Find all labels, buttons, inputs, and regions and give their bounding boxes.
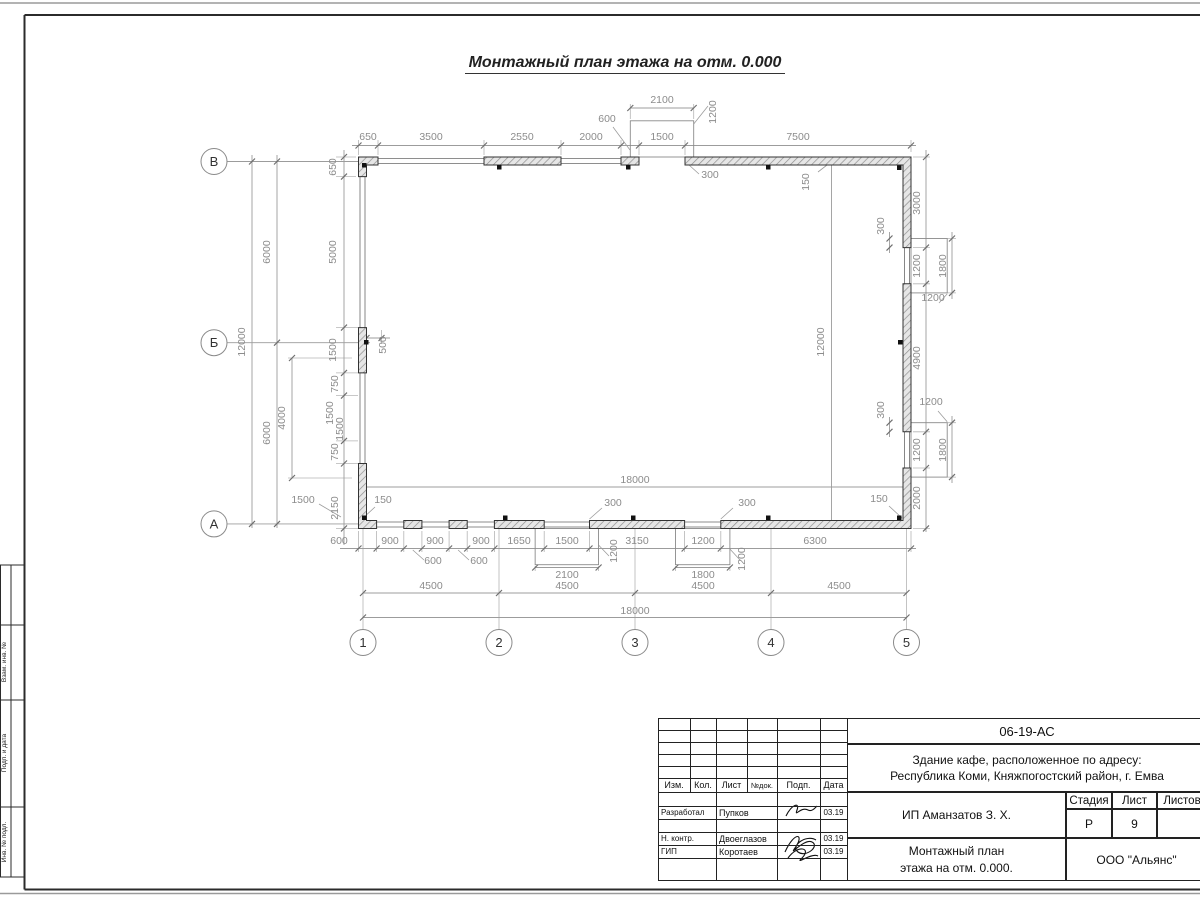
dimension-label: 1200 [919, 396, 943, 408]
stamp-role-3: ГИП [658, 845, 716, 858]
dimension-label: 1500 [291, 494, 315, 506]
stamp-col-izm: Изм. [658, 778, 690, 792]
dimension-label: 6000 [261, 240, 273, 264]
stamp-date-2: 03.19 [820, 832, 847, 845]
dimension-label: 750 [329, 375, 341, 393]
dimension-label: 1500 [327, 338, 339, 362]
side-stamp-label: Подп. и дата [1, 733, 8, 772]
axis-bubble: В [201, 149, 227, 175]
dimension-label: 18000 [620, 474, 649, 486]
dimension-label: 600 [424, 555, 442, 567]
stamp-name-3: Коротаев [716, 845, 777, 858]
dimension-label: 750 [329, 443, 341, 461]
dimension-label: 650 [327, 158, 339, 176]
dimension-label: 3150 [625, 535, 649, 547]
axis-label: 3 [631, 635, 638, 650]
stamp-stage-value: Р [1066, 809, 1112, 838]
dimension-label: 1800 [937, 254, 949, 278]
dimension-label: 2100 [650, 94, 674, 106]
stamp-name-1: Пупков [716, 806, 777, 819]
dimension-label: 500 [377, 336, 389, 354]
dimension-label: 3500 [419, 131, 443, 143]
stamp-col-kol: Кол. [690, 778, 716, 792]
dimension-label: 300 [875, 217, 887, 235]
dimension-label: 300 [738, 497, 756, 509]
stamp-sheets-label: Листов [1157, 792, 1200, 809]
dimension-label: 2000 [911, 486, 923, 510]
dimension-label: 6000 [261, 421, 273, 445]
axis-label: 5 [903, 635, 910, 650]
stamp-client: ИП Аманзатов З. Х. [847, 792, 1066, 838]
stamp-object-name: Здание кафе, расположенное по адресу: Ре… [847, 744, 1200, 792]
dimension-label: 300 [604, 497, 622, 509]
dimension-label: 2150 [329, 496, 341, 520]
dimension-label: 12000 [236, 327, 248, 356]
stamp-object-line1: Здание кафе, расположенное по адресу: [912, 752, 1141, 768]
drawing-caption: Монтажный план этажа на отм. 0.000 [440, 54, 810, 72]
side-stamp-label: Инв. № подл. [1, 822, 8, 863]
stamp-sheet-value: 9 [1112, 809, 1157, 838]
dimension-label: 1650 [507, 535, 531, 547]
axis-bubble: 1 [350, 630, 376, 656]
stamp-role-2: Н. контр. [658, 832, 716, 845]
dimension-label: 4000 [276, 406, 288, 430]
axis-label: Б [210, 335, 219, 350]
dimension-label: 150 [374, 494, 392, 506]
stamp-col-list: Лист [716, 778, 747, 792]
dimension-label: 1200 [736, 547, 748, 571]
dimension-label: 900 [426, 535, 444, 547]
axis-bubble: 5 [894, 630, 920, 656]
dimension-label: 150 [800, 173, 812, 191]
axis-bubble: 4 [758, 630, 784, 656]
dimension-label: 4500 [419, 580, 443, 592]
dimension-label: 900 [472, 535, 490, 547]
axis-bubble: 2 [486, 630, 512, 656]
dimension-label: 1200 [921, 292, 945, 304]
dimension-label: 4500 [691, 580, 715, 592]
stamp-col-podp: Подп. [777, 778, 820, 792]
dimension-label: 1200 [707, 100, 719, 124]
dimension-label: 4900 [911, 346, 923, 370]
stamp-col-ndoc: №док. [747, 778, 777, 792]
dimension-label: 1500 [555, 535, 579, 547]
dimension-label: 300 [701, 169, 719, 181]
dimension-label: 6300 [803, 535, 827, 547]
stamp-company: ООО "Альянс" [1066, 838, 1200, 881]
dimension-label: 4500 [827, 580, 851, 592]
stamp-doc-title-line1: Монтажный план [909, 843, 1005, 859]
dimension-label: 2550 [510, 131, 534, 143]
axis-label: 4 [767, 635, 774, 650]
stamp-object-line2: Республика Коми, Княжпогостский район, г… [890, 768, 1164, 784]
dimension-label: 2000 [579, 131, 603, 143]
dimension-label: 5000 [327, 240, 339, 264]
dimension-label: 900 [381, 535, 399, 547]
dimension-label: 1200 [911, 254, 923, 278]
stamp-name-2: Двоеглазов [716, 832, 777, 845]
dimension-ticks [249, 105, 955, 621]
axis-bubble: А [201, 511, 227, 537]
dimension-label: 3000 [911, 191, 923, 215]
dimension-label: 18000 [620, 605, 649, 617]
stamp-date-1: 03.19 [820, 806, 847, 819]
dimension-label: 1800 [937, 438, 949, 462]
axis-bubble: Б [201, 330, 227, 356]
side-stamp-label: Взам. инв. № [1, 642, 8, 682]
axis-label: 2 [495, 635, 502, 650]
axis-label: В [210, 154, 219, 169]
leader-lines [319, 106, 947, 560]
dimension-label: 12000 [815, 327, 827, 356]
dimension-label: 1500 [650, 131, 674, 143]
stamp-sheets-value [1157, 809, 1200, 838]
stamp-role-1: Разработал [658, 806, 716, 819]
dimension-label: 7500 [786, 131, 810, 143]
dimension-label: 650 [359, 131, 377, 143]
dimension-label: 1200 [911, 438, 923, 462]
dimension-label: 1200 [608, 539, 620, 563]
dimension-label: 600 [470, 555, 488, 567]
window-lines [360, 159, 910, 528]
stamp-doc-title-line2: этажа на отм. 0.000. [900, 860, 1013, 876]
stamp-document-code: 06-19-АС [847, 718, 1200, 744]
stamp-sheet-label: Лист [1112, 792, 1157, 809]
dimension-label: 150 [870, 493, 888, 505]
axis-bubble: 3 [622, 630, 648, 656]
walls [359, 157, 912, 529]
dimension-label: 300 [875, 401, 887, 419]
axis-row-lines [227, 162, 370, 524]
axis-label: 1 [359, 635, 366, 650]
dimension-label: 600 [330, 535, 348, 547]
stamp-col-data: Дата [820, 778, 847, 792]
axis-label: А [210, 516, 219, 531]
stamp-doc-title: Монтажный план этажа на отм. 0.000. [847, 838, 1066, 881]
dimension-label: 1200 [691, 535, 715, 547]
dimension-lines [252, 108, 952, 618]
dimension-label: 4500 [555, 580, 579, 592]
stamp-date-3: 03.19 [820, 845, 847, 858]
drawing-sheet: Взам. инв. №Подп. и датаИнв. № подл. [0, 0, 1200, 900]
extension-lines [288, 104, 956, 630]
dimension-label: 1500 [334, 417, 346, 441]
dimension-label: 600 [598, 113, 616, 125]
stamp-stage-label: Стадия [1066, 792, 1112, 809]
